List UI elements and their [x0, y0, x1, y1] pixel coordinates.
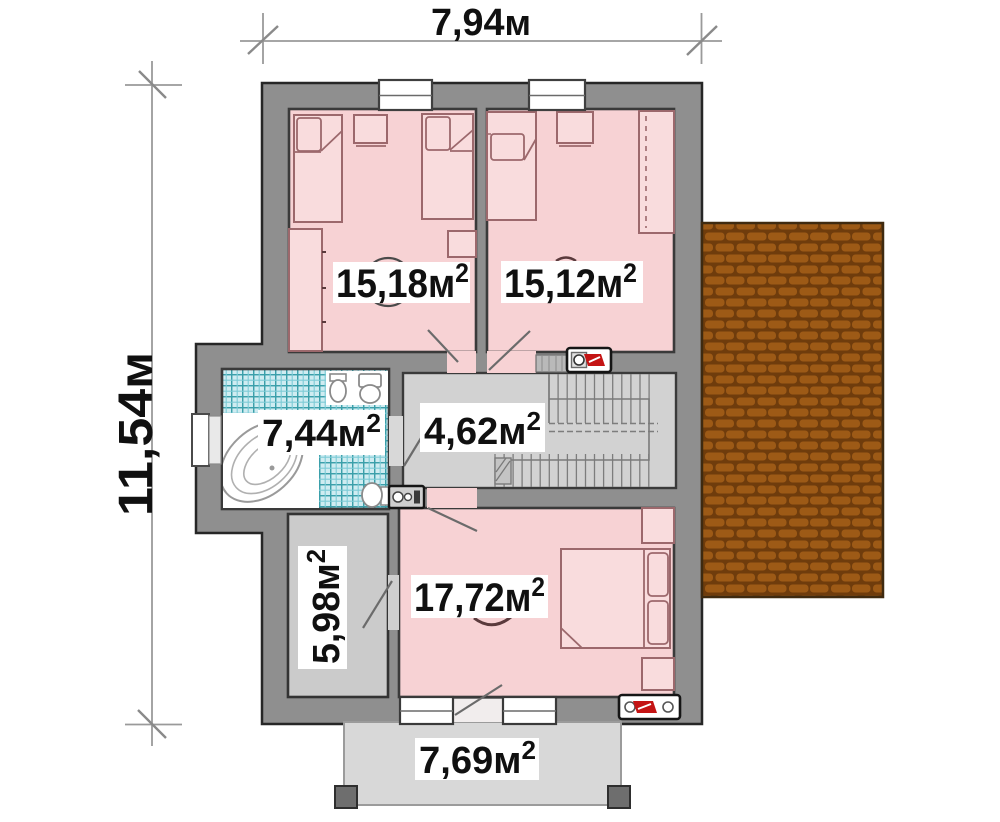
svg-text:5,98м2: 5,98м2	[301, 549, 348, 664]
svg-text:7,69м2: 7,69м2	[419, 735, 536, 782]
svg-text:17,72м2: 17,72м2	[414, 572, 545, 620]
svg-text:11,54м: 11,54м	[110, 352, 163, 516]
svg-text:15,18м2: 15,18м2	[336, 258, 469, 306]
svg-text:4,62м2: 4,62м2	[424, 406, 541, 453]
svg-text:7,44м2: 7,44м2	[262, 408, 381, 455]
svg-text:7,94м: 7,94м	[431, 2, 531, 44]
svg-text:15,12м2: 15,12м2	[504, 258, 637, 306]
